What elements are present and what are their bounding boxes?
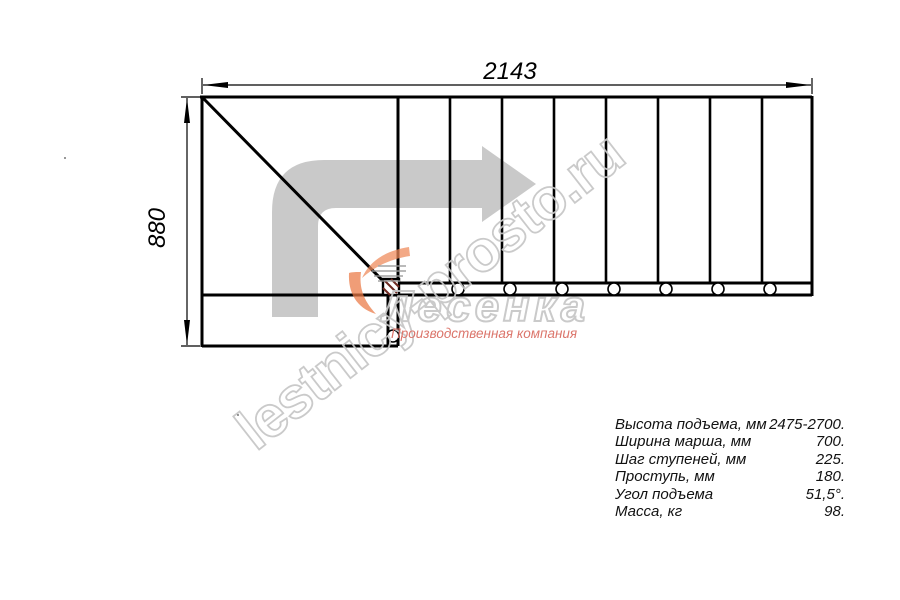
spec-row: Высота подъема, мм 2475-2700. <box>615 416 845 433</box>
spec-value: 700. <box>816 433 845 450</box>
stray-dot <box>237 414 239 416</box>
spec-value: 225. <box>816 451 845 468</box>
spec-value: 98. <box>824 503 845 520</box>
spec-label: Ширина марша, мм <box>615 433 751 450</box>
dim-arrow-down <box>184 320 190 345</box>
baluster-circle <box>712 283 724 295</box>
spec-label: Шаг ступеней, мм <box>615 451 746 468</box>
dimension-height-value: 880 <box>144 207 171 248</box>
spec-row: Шаг ступеней, мм 225. <box>615 451 845 468</box>
stair-plan-screenshot: 2143 880 lestnicy-prosto.ru Лесенка <box>0 0 900 600</box>
stray-dot <box>64 157 66 159</box>
spec-value: 51,5°. <box>806 486 845 503</box>
spec-value: 2475-2700. <box>769 416 845 433</box>
baluster-circle <box>764 283 776 295</box>
spec-label: Масса, кг <box>615 503 682 520</box>
dimension-top: 2143 <box>202 58 812 94</box>
watermark-logo-text: Лесенка <box>380 282 589 331</box>
spec-value: 180. <box>816 468 845 485</box>
baluster-circle <box>608 283 620 295</box>
dim-arrow-up <box>184 98 190 123</box>
spec-row: Угол подъема 51,5°. <box>615 486 845 503</box>
baluster-circle <box>660 283 672 295</box>
dim-arrow-left <box>203 82 228 88</box>
spec-row: Ширина марша, мм 700. <box>615 433 845 450</box>
dimension-width-value: 2143 <box>482 58 537 85</box>
spec-label: Высота подъема, мм <box>615 416 767 433</box>
spec-row: Проступь, мм 180. <box>615 468 845 485</box>
watermark-logo-subtitle: Производственная компания <box>391 326 577 341</box>
spec-row: Масса, кг 98. <box>615 503 845 520</box>
spec-label: Проступь, мм <box>615 468 715 485</box>
dim-arrow-right <box>786 82 811 88</box>
spec-label: Угол подъема <box>615 486 713 503</box>
spec-table: Высота подъема, мм 2475-2700. Ширина мар… <box>615 416 845 520</box>
dimension-left: 880 <box>144 97 200 346</box>
